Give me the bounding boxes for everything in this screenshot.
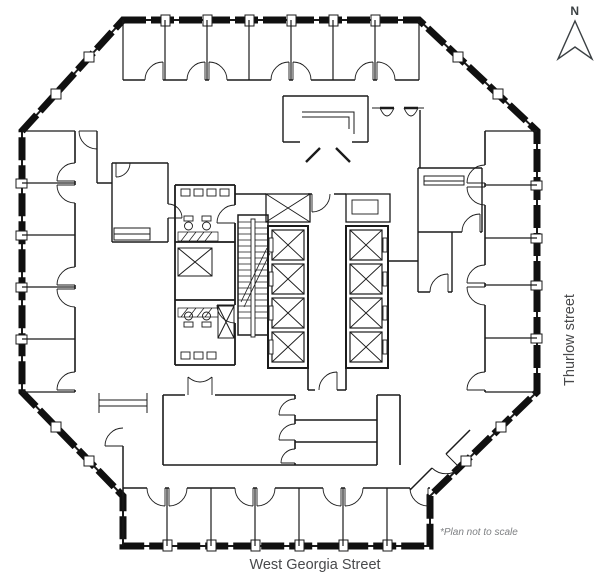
elevator-door <box>383 238 387 252</box>
floor-plan-page: N West Georgia Street Thurlow street *Pl… <box>0 0 607 583</box>
elevator-door <box>269 238 273 252</box>
street-label-bottom: West Georgia Street <box>215 557 415 573</box>
street-label-right: Thurlow street <box>562 270 582 410</box>
north-indicator: N <box>553 4 597 63</box>
elevator-door <box>269 272 273 286</box>
elevator-door <box>383 306 387 320</box>
exterior-walls <box>22 20 537 546</box>
elevator-door <box>383 272 387 286</box>
stair-stringer <box>251 219 255 337</box>
north-label: N <box>553 4 597 18</box>
elevator-door <box>269 340 273 354</box>
plan-disclaimer: *Plan not to scale <box>440 527 518 538</box>
north-arrow-icon <box>555 19 595 63</box>
elevator-door <box>269 306 273 320</box>
elevator-door <box>383 340 387 354</box>
floor-plan-drawing <box>0 0 607 583</box>
